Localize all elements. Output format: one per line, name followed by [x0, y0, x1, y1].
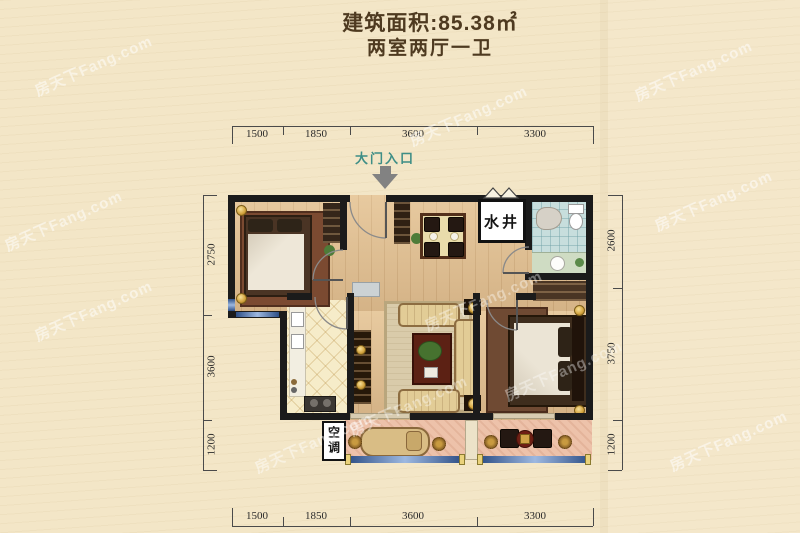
door-arc-overlay [208, 175, 613, 490]
dim-top-3: 3600 [388, 128, 438, 141]
tick [350, 126, 351, 135]
dimension-line-left [203, 195, 204, 470]
floor-plan-page: 建筑面积:85.38㎡ 两室两厅一卫 大门入口 1500 1850 3600 3… [0, 0, 800, 533]
dim-bottom-3: 3600 [388, 510, 438, 523]
dim-top-1: 1500 [232, 128, 282, 141]
floor-plan: 水井 空调 [228, 195, 593, 470]
entrance-arrow [380, 166, 391, 174]
tick [593, 126, 594, 144]
entrance-label: 大门入口 [335, 148, 435, 167]
watermark: 房天下Fang.com [31, 275, 155, 346]
tick [283, 126, 284, 135]
dim-bottom-4: 3300 [510, 510, 560, 523]
tick [477, 126, 478, 135]
dim-top-2: 1850 [291, 128, 341, 141]
door-arc-bedroom2 [487, 300, 517, 330]
watermark: 房天下Fang.com [651, 165, 775, 236]
tick [350, 517, 351, 526]
watermark: 房天下Fang.com [666, 405, 790, 476]
dim-top-4: 3300 [510, 128, 560, 141]
dimension-line-bottom [232, 526, 593, 527]
watermark: 房天下Fang.com [1, 185, 125, 256]
tick [613, 288, 622, 289]
tick [477, 517, 478, 526]
dimension-line-right [622, 195, 623, 470]
dimension-line-top [232, 126, 593, 127]
page-title-rooms: 两室两厅一卫 [240, 33, 620, 60]
tick [283, 517, 284, 526]
door-arc-entrance [350, 202, 386, 238]
watermark: 房天下Fang.com [631, 35, 755, 106]
door-arc-bathroom [503, 247, 529, 273]
vent-zigzag [484, 188, 518, 198]
door-arc-kitchen [315, 297, 347, 329]
tick [593, 508, 594, 526]
watermark: 房天下Fang.com [31, 30, 155, 101]
dim-bottom-1: 1500 [232, 510, 282, 523]
door-arc-bedroom1 [313, 250, 343, 280]
dim-bottom-2: 1850 [291, 510, 341, 523]
